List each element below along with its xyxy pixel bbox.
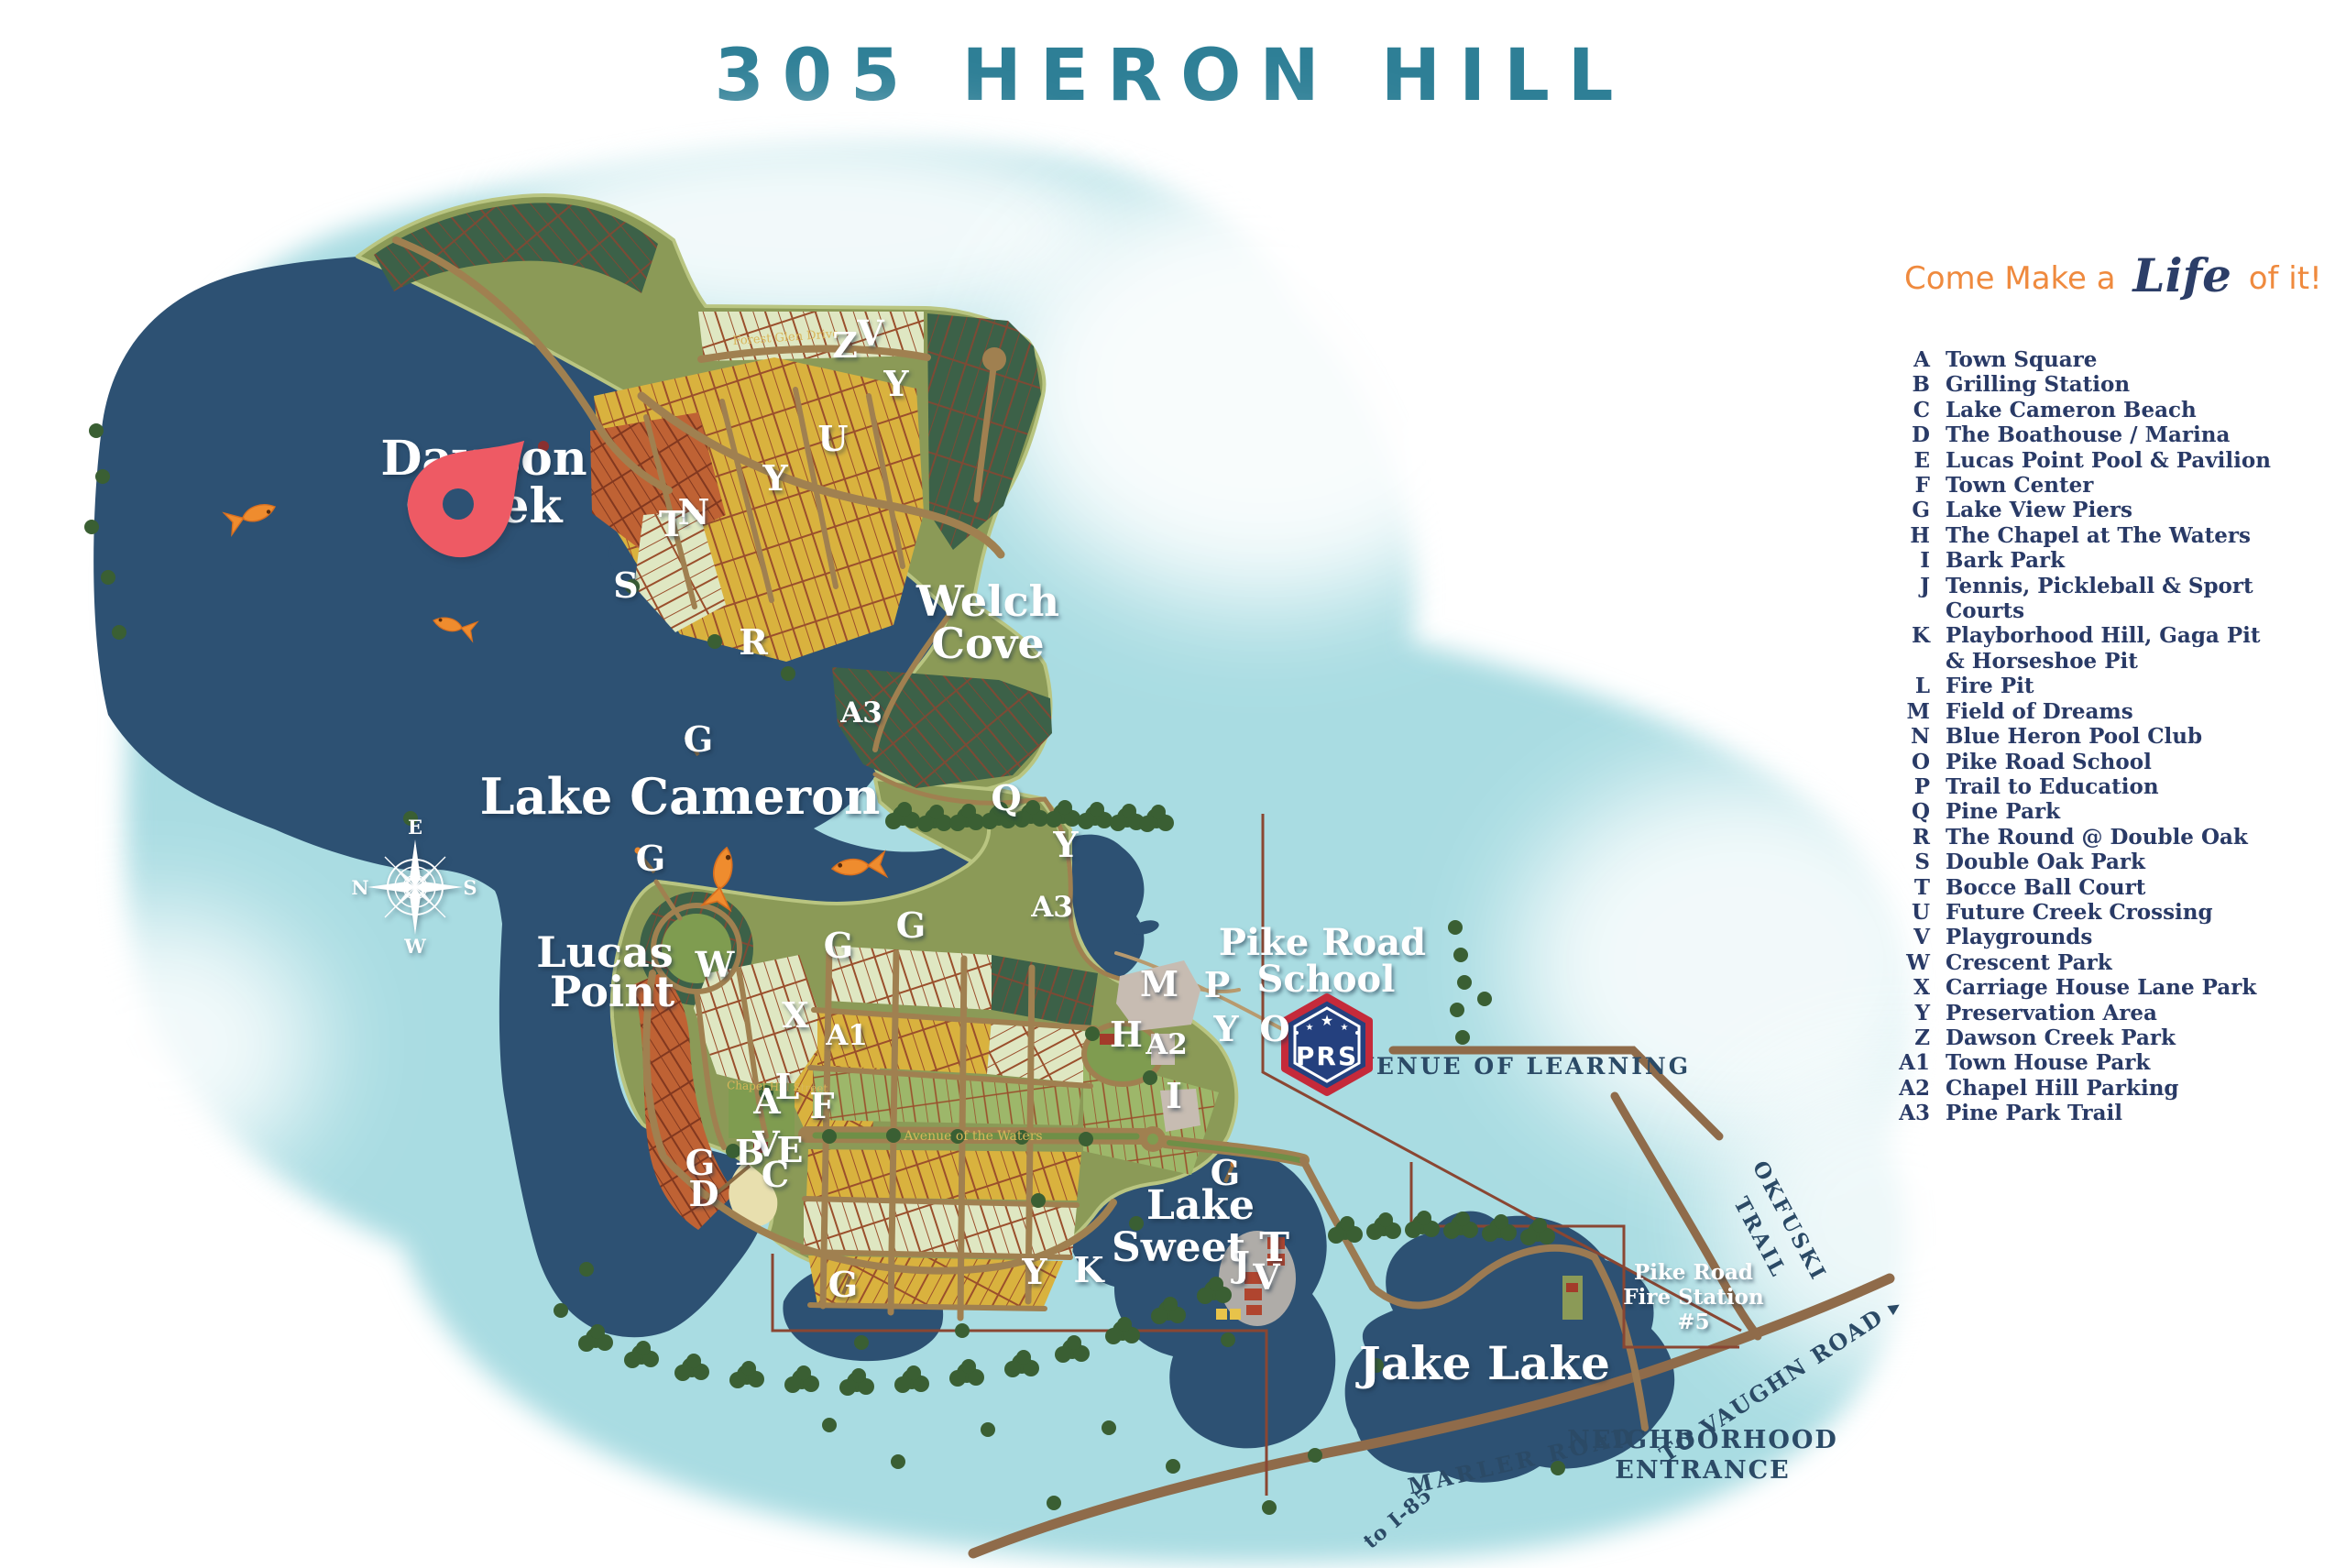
map-marker-G: G xyxy=(824,925,853,966)
legend-key: L xyxy=(1886,674,1946,698)
legend-item: XCarriage House Lane Park xyxy=(1886,975,2326,1000)
map-marker-G: G xyxy=(1211,1152,1240,1193)
legend-item: FTown Center xyxy=(1886,473,2326,498)
legend-key: N xyxy=(1886,724,1946,749)
map-marker-R: R xyxy=(739,621,768,663)
legend-label: Field of Dreams xyxy=(1946,699,2133,724)
legend-item: DThe Boathouse / Marina xyxy=(1886,422,2326,447)
legend-key: A1 xyxy=(1886,1050,1946,1075)
compass-s: S xyxy=(463,876,477,899)
map-marker-Y: Y xyxy=(1212,1008,1239,1049)
legend-label: Crescent Park xyxy=(1946,950,2112,975)
map-marker-W: W xyxy=(695,944,736,985)
legend-item: TBocce Ball Court xyxy=(1886,875,2326,900)
tagline-prefix: Come Make a xyxy=(1904,260,2116,297)
map-marker-C: C xyxy=(762,1154,789,1195)
map-marker-Y: Y xyxy=(1052,824,1079,865)
legend-label: Tennis, Pickleball & Sport Courts xyxy=(1946,574,2326,624)
road-label: AVENUE OF LEARNING xyxy=(1336,1053,1691,1080)
legend-item: WCrescent Park xyxy=(1886,950,2326,975)
legend-label: Pike Road School xyxy=(1946,750,2152,774)
svg-text:★: ★ xyxy=(1341,1023,1349,1033)
legend-key: R xyxy=(1886,825,1946,850)
map-marker-T: T xyxy=(659,503,685,544)
legend-label: Pine Park Trail xyxy=(1946,1101,2122,1125)
legend-item: JTennis, Pickleball & Sport Courts xyxy=(1886,574,2326,624)
legend-label: Lake View Piers xyxy=(1946,498,2132,522)
legend-key: F xyxy=(1886,473,1946,498)
map-marker-Y: Y xyxy=(762,457,788,499)
legend-key: A xyxy=(1886,347,1946,372)
map-marker-G: G xyxy=(636,838,665,879)
legend-key: V xyxy=(1886,925,1946,949)
legend-key: K xyxy=(1886,623,1946,648)
legend-item: YPreservation Area xyxy=(1886,1001,2326,1025)
map-marker-Q: Q xyxy=(991,777,1021,818)
legend-key: Q xyxy=(1886,799,1946,824)
map-marker-B: B xyxy=(735,1132,764,1173)
map-marker-M: M xyxy=(1140,963,1178,1004)
map-marker-V: V xyxy=(856,313,885,354)
compass-e: E xyxy=(408,816,422,839)
legend-item: MField of Dreams xyxy=(1886,699,2326,724)
map-page: 305 HERON HILL xyxy=(0,0,2346,1568)
legend-item: A1Town House Park xyxy=(1886,1050,2326,1075)
legend-item: NBlue Heron Pool Club xyxy=(1886,724,2326,749)
legend-label: The Chapel at The Waters xyxy=(1946,523,2251,548)
legend-key: B xyxy=(1886,372,1946,397)
compass-w: W xyxy=(403,935,426,958)
street-label: Avenue of the Waters xyxy=(903,1129,1042,1144)
legend-label: Future Creek Crossing xyxy=(1946,900,2213,925)
legend-label: Lucas Point Pool & Pavilion xyxy=(1946,448,2271,473)
map-marker-G: G xyxy=(896,905,926,946)
map-marker-X: X xyxy=(782,994,809,1036)
legend-key: X xyxy=(1886,975,1946,1000)
map-marker-A3: A3 xyxy=(1030,891,1073,924)
legend-item: HThe Chapel at The Waters xyxy=(1886,523,2326,548)
legend-item: SDouble Oak Park xyxy=(1886,850,2326,874)
map-marker-D: D xyxy=(689,1173,719,1214)
legend-item: LFire Pit xyxy=(1886,674,2326,698)
compass-n: N xyxy=(351,876,368,899)
legend-key: H xyxy=(1886,523,1946,548)
legend-item: IBark Park xyxy=(1886,548,2326,573)
legend-key: P xyxy=(1886,774,1946,799)
tagline: Come Make a Life of it! xyxy=(1904,246,2326,300)
map-marker-U: U xyxy=(817,418,848,459)
legend-key: U xyxy=(1886,900,1946,925)
place-label-fire-station: #5 xyxy=(1677,1310,1709,1334)
legend-key: J xyxy=(1886,574,1946,598)
legend-item: OPike Road School xyxy=(1886,750,2326,774)
legend-key: T xyxy=(1886,875,1946,900)
legend-label: Bocce Ball Court xyxy=(1946,875,2145,900)
prs-logo-text: PRS xyxy=(1296,1041,1358,1071)
tagline-suffix: of it! xyxy=(2249,260,2322,297)
legend-key: W xyxy=(1886,950,1946,975)
legend-label: Double Oak Park xyxy=(1946,850,2145,874)
map-marker-I: I xyxy=(1166,1075,1182,1116)
legend-key: A3 xyxy=(1886,1101,1946,1125)
map-marker-A2: A2 xyxy=(1145,1028,1188,1061)
legend-key: G xyxy=(1886,498,1946,522)
legend-item: ELucas Point Pool & Pavilion xyxy=(1886,448,2326,473)
legend-key: O xyxy=(1886,750,1946,774)
legend-label: Lake Cameron Beach xyxy=(1946,398,2197,422)
legend-item: VPlaygrounds xyxy=(1886,925,2326,949)
place-label-lake-cameron: Lake Cameron xyxy=(480,767,881,826)
place-label-jake-lake: Jake Lake xyxy=(1355,1336,1610,1390)
legend-item: CLake Cameron Beach xyxy=(1886,398,2326,422)
legend-key: Z xyxy=(1886,1025,1946,1050)
map-marker-Y: Y xyxy=(1021,1251,1047,1292)
map-marker-K: K xyxy=(1073,1249,1105,1290)
legend-label: Bark Park xyxy=(1946,548,2065,573)
legend-label: Carriage House Lane Park xyxy=(1946,975,2256,1000)
map-marker-G: G xyxy=(684,718,713,760)
svg-text:★: ★ xyxy=(1306,1023,1314,1033)
map-marker-V: V xyxy=(1252,1256,1281,1298)
map-marker-A3: A3 xyxy=(839,696,882,729)
legend-item: UFuture Creek Crossing xyxy=(1886,900,2326,925)
legend-label: Town House Park xyxy=(1946,1050,2150,1075)
map-marker-H: H xyxy=(1110,1014,1143,1055)
tagline-script-word: Life xyxy=(2132,248,2231,302)
legend-label: Playborhood Hill, Gaga Pit & Horseshoe P… xyxy=(1946,623,2260,674)
legend-item: ZDawson Creek Park xyxy=(1886,1025,2326,1050)
map-marker-Y: Y xyxy=(882,363,909,404)
star-icon: ★ xyxy=(1321,1012,1333,1029)
legend-key: C xyxy=(1886,398,1946,422)
legend-label: Blue Heron Pool Club xyxy=(1946,724,2202,749)
legend-label: Chapel Hill Parking xyxy=(1946,1076,2179,1101)
legend-label: Dawson Creek Park xyxy=(1946,1025,2176,1050)
map-marker-A1: A1 xyxy=(825,1019,868,1052)
place-label-fire-station: Pike Road xyxy=(1634,1260,1753,1285)
legend-item: RThe Round @ Double Oak xyxy=(1886,825,2326,850)
legend-item: GLake View Piers xyxy=(1886,498,2326,522)
map-marker-F: F xyxy=(810,1085,835,1126)
legend-label: Grilling Station xyxy=(1946,372,2130,397)
legend-label: Playgrounds xyxy=(1946,925,2092,949)
map-marker-J: J xyxy=(1231,1244,1250,1285)
legend-item: A2Chapel Hill Parking xyxy=(1886,1076,2326,1101)
map-marker-S: S xyxy=(613,565,638,606)
legend-label: The Boathouse / Marina xyxy=(1946,422,2230,447)
legend-label: The Round @ Double Oak xyxy=(1946,825,2248,850)
legend-key: Y xyxy=(1886,1001,1946,1025)
road-label: ENTRANCE xyxy=(1615,1456,1791,1485)
map-marker-Z: Z xyxy=(832,324,858,366)
legend-item: PTrail to Education xyxy=(1886,774,2326,799)
map-marker-G: G xyxy=(828,1264,858,1305)
legend-item: A3Pine Park Trail xyxy=(1886,1101,2326,1125)
legend-label: Trail to Education xyxy=(1946,774,2159,799)
legend-key: I xyxy=(1886,548,1946,573)
legend-key: M xyxy=(1886,699,1946,724)
map-marker-O: O xyxy=(1259,1008,1289,1049)
legend-key: A2 xyxy=(1886,1076,1946,1101)
legend-key: D xyxy=(1886,422,1946,447)
legend-item: KPlayborhood Hill, Gaga Pit & Horseshoe … xyxy=(1886,623,2326,674)
legend-key: E xyxy=(1886,448,1946,473)
map-marker-P: P xyxy=(1204,964,1231,1005)
legend-label: Pine Park xyxy=(1946,799,2060,824)
legend-label: Preservation Area xyxy=(1946,1001,2157,1025)
fire-station-ground xyxy=(1562,1276,1583,1320)
place-label-fire-station: Fire Station xyxy=(1623,1285,1764,1310)
place-label-lucas-point: Point xyxy=(550,967,675,1016)
legend-item: ATown Square xyxy=(1886,347,2326,372)
map-marker-A: A xyxy=(752,1080,781,1122)
legend-item: QPine Park xyxy=(1886,799,2326,824)
legend-list: ATown SquareBGrilling StationCLake Camer… xyxy=(1886,347,2326,1126)
legend-key: S xyxy=(1886,850,1946,874)
legend-label: Fire Pit xyxy=(1946,674,2034,698)
place-label-welch-cove: Cove xyxy=(931,619,1044,668)
legend-panel: Come Make a Life of it! ATown SquareBGri… xyxy=(1886,246,2326,1126)
legend-label: Town Center xyxy=(1946,473,2093,498)
prs-school-logo: ★ ★ ★ PRS xyxy=(1285,997,1369,1092)
legend-item: BGrilling Station xyxy=(1886,372,2326,397)
legend-label: Town Square xyxy=(1946,347,2097,372)
